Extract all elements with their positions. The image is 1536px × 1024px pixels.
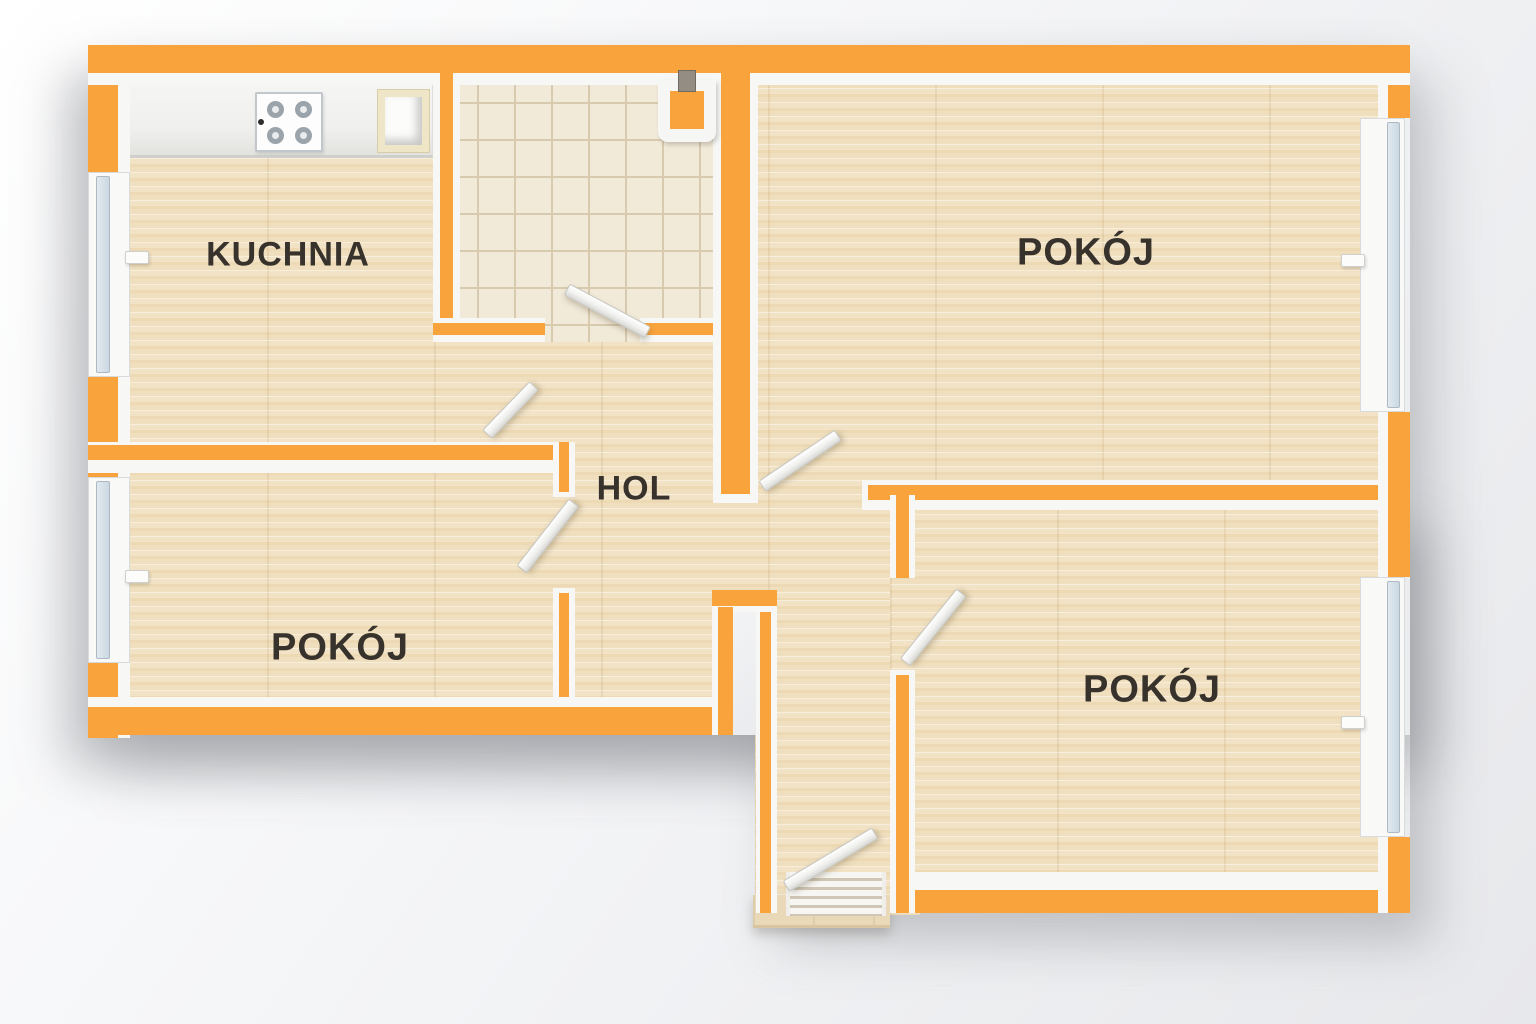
kitchen-sink xyxy=(377,89,430,153)
wall-room-bottom-left-top xyxy=(88,442,565,473)
window-glass xyxy=(1387,581,1400,833)
stove-knob xyxy=(258,119,264,125)
floor-plan-scene: KUCHNIA POKÓJ HOL POKÓJ POKÓJ xyxy=(0,0,1536,1024)
window-glass xyxy=(1387,122,1400,408)
label-room-bottom-left: POKÓJ xyxy=(271,627,409,670)
wall-room-bottom-left-right-upper xyxy=(553,442,575,497)
wall-outer-right-middle xyxy=(1378,412,1410,577)
wall-corridor-right-lower xyxy=(890,670,915,913)
exterior-gap xyxy=(733,612,756,735)
stove-burner xyxy=(267,101,284,118)
sink-basin xyxy=(385,97,422,145)
label-hall: HOL xyxy=(597,470,672,509)
stove-burner xyxy=(267,127,284,144)
window-glass xyxy=(96,481,110,659)
label-room-bottom-right: POKÓJ xyxy=(1083,669,1221,712)
bathroom-washbasin xyxy=(658,80,716,142)
stove-burner xyxy=(295,127,312,144)
stove-cooktop xyxy=(255,92,323,152)
wall-room-bottom-left-right-lower xyxy=(553,588,575,697)
wall-bathroom-bottom-left xyxy=(433,318,545,342)
window-handle xyxy=(125,251,149,264)
label-kitchen: KUCHNIA xyxy=(206,236,370,275)
room-bottom-left-window xyxy=(88,477,130,663)
washbasin-faucet xyxy=(678,70,696,92)
wall-hall-room-top-right-divider xyxy=(713,73,758,503)
wall-outer-bottom-left xyxy=(88,697,733,735)
wall-rooms-right-divider xyxy=(862,480,1378,510)
window-handle xyxy=(1341,716,1365,729)
wall-outer-right-upper xyxy=(1378,85,1410,118)
wall-kitchen-bathroom-divider xyxy=(433,73,460,335)
window-glass xyxy=(96,176,110,373)
kitchen-window xyxy=(88,172,130,377)
wall-corridor-right-upper xyxy=(890,495,915,578)
window-handle xyxy=(1341,254,1365,267)
room-top-right-window xyxy=(1360,118,1405,412)
wall-outer-bottom-right xyxy=(890,872,1410,913)
washbasin-bowl xyxy=(670,91,704,129)
wall-outer-left-upper xyxy=(88,85,130,172)
stove-burner xyxy=(295,101,312,118)
wall-hall-step-vertical xyxy=(712,607,733,735)
wall-corridor-left xyxy=(756,612,777,913)
label-room-top-right: POKÓJ xyxy=(1017,232,1155,275)
wall-outer-right-lower xyxy=(1378,837,1410,913)
wall-bathroom-bottom-right xyxy=(640,318,713,342)
window-handle xyxy=(125,570,149,583)
room-bottom-right-window xyxy=(1360,577,1405,837)
